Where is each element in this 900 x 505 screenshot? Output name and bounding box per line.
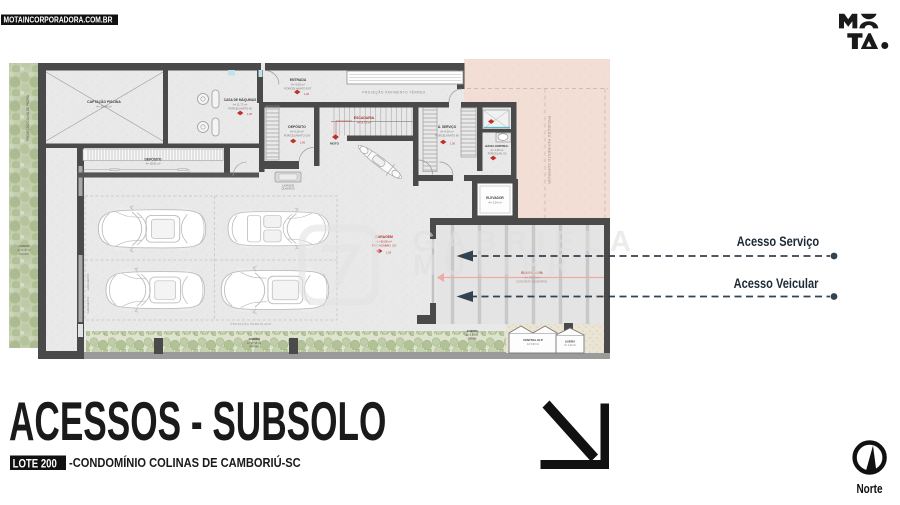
svg-text:JARDIM: JARDIM [18, 244, 30, 248]
svg-text:DEPÓSITO: DEPÓSITO [145, 157, 162, 162]
svg-text:MUTTER: MUTTER [413, 250, 576, 282]
svg-text:CASA DE MÁQUINAS: CASA DE MÁQUINAS [224, 97, 256, 102]
svg-text:LOTE 200: LOTE 200 [13, 458, 57, 471]
svg-text:1,06: 1,06 [386, 251, 392, 255]
svg-text:GARAGEM 02: GARAGEM 02 [86, 296, 90, 313]
svg-text:PORCELANATO EXT: PORCELANATO EXT [284, 87, 311, 91]
svg-text:ACESSOS - SUBSOLO: ACESSOS - SUBSOLO [9, 390, 386, 452]
svg-text:CENTRAL GLP: CENTRAL GLP [523, 338, 543, 342]
svg-text:Acesso Serviço: Acesso Serviço [737, 234, 820, 249]
svg-text:1,06: 1,06 [450, 142, 456, 146]
svg-text:A= 5,00 m²: A= 5,00 m² [527, 343, 539, 346]
svg-text:A= 3,24 m²: A= 3,24 m² [488, 201, 501, 205]
svg-text:A= 6,00 m²: A= 6,00 m² [440, 130, 453, 134]
svg-text:GARAGEM 01: GARAGEM 01 [86, 273, 90, 290]
svg-text:CAPTAÇÃO PISCINA: CAPTAÇÃO PISCINA [87, 99, 121, 104]
svg-text:PORCELANATO 60: PORCELANATO 60 [228, 107, 252, 111]
svg-text:Norte: Norte [856, 483, 882, 496]
svg-text:GRAMA: GRAMA [249, 345, 259, 349]
svg-text:PORCELANATO 60: PORCELANATO 60 [435, 134, 459, 138]
svg-text:MOTAINCORPORADORA.COM.BR: MOTAINCORPORADORA.COM.BR [4, 15, 114, 25]
svg-text:ELEVADOR: ELEVADOR [486, 196, 504, 200]
svg-text:PROJEÇÃO CALHA DE PEDRA: PROJEÇÃO CALHA DE PEDRA [25, 94, 30, 141]
svg-text:QUADROS: QUADROS [281, 187, 294, 191]
svg-text:MOTO: MOTO [330, 142, 340, 146]
svg-text:Á. SERVIÇO: Á. SERVIÇO [438, 124, 457, 129]
svg-text:A= 2,68 m²: A= 2,68 m² [491, 148, 504, 152]
svg-text:Acesso Veicular: Acesso Veicular [734, 276, 819, 291]
svg-text:A= 11,73 m²: A= 11,73 m² [233, 103, 248, 107]
svg-text:PORCELANATO CIN: PORCELANATO CIN [284, 134, 310, 138]
svg-text:JARDIM: JARDIM [466, 329, 478, 333]
svg-text:PROJEÇÃO PAVIMENTO TÉRREO: PROJEÇÃO PAVIMENTO TÉRREO [362, 90, 425, 95]
svg-text:GRAMA: GRAMA [467, 337, 477, 340]
svg-text:A= 8,73 m²: A= 8,73 m² [357, 121, 371, 125]
svg-text:A= 19,96 m²: A= 19,96 m² [96, 105, 111, 109]
svg-text:DEPÓSITO: DEPÓSITO [288, 124, 306, 129]
svg-text:PORCELAN. 60: PORCELAN. 60 [488, 152, 507, 156]
svg-text:-CONDOMÍNIO COLINAS DE CAMBORI: -CONDOMÍNIO COLINAS DE CAMBORIÚ-SC [69, 455, 301, 470]
svg-text:GRAMA: GRAMA [19, 252, 29, 256]
svg-text:A= 17,38 m²: A= 17,38 m² [247, 341, 261, 345]
svg-text:BANH. EMPREG.: BANH. EMPREG. [485, 144, 508, 148]
svg-text:JARDIM: JARDIM [248, 337, 260, 341]
svg-text:1,06: 1,06 [300, 141, 306, 145]
svg-text:LIXEIRA: LIXEIRA [565, 340, 575, 344]
svg-text:1,06: 1,06 [304, 92, 310, 96]
svg-text:ENTRADA: ENTRADA [290, 78, 307, 82]
svg-text:PROJEÇÃO PERGOLADO: PROJEÇÃO PERGOLADO [230, 321, 272, 326]
svg-text:A=73,45 m²: A=73,45 m² [17, 248, 31, 252]
svg-text:A= 1,40 m²: A= 1,40 m² [564, 344, 576, 347]
svg-text:A= 5,00 m²: A= 5,00 m² [466, 334, 478, 337]
svg-text:ESCADARIA: ESCADARIA [354, 116, 375, 120]
svg-text:A= 18,81 m²: A= 18,81 m² [146, 162, 161, 166]
svg-text:1,06: 1,06 [247, 112, 253, 116]
svg-text:PROJEÇÃO PAVIMENTO SUPERIOR: PROJEÇÃO PAVIMENTO SUPERIOR [547, 116, 552, 185]
